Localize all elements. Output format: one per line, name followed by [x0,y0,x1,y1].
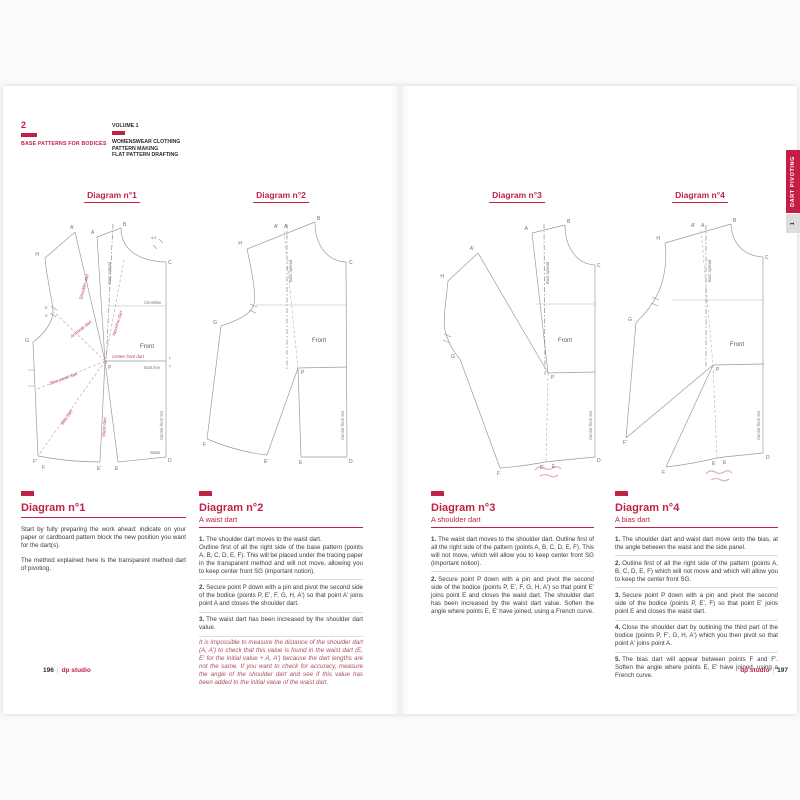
red-rule [199,527,363,528]
neckline-dart-label: Neckline dart [111,310,124,337]
section-title: Diagram n°4 [615,502,778,514]
point-B: B [123,222,127,228]
point-D: D [766,455,770,461]
point-G: G [25,338,29,344]
point-D: D [597,458,601,464]
point-labels: B A A' H C G P F E' E D [203,216,353,466]
point-L: L [169,355,172,360]
series-line: FLAT PATTERN DRAFTING [112,152,180,159]
waist-label: Waist [150,450,161,455]
page-gutter [392,86,408,714]
bust-line-label: Bust line [144,365,161,370]
point-F: F [203,442,206,448]
red-chip [431,491,444,496]
point-E-prime: E' [712,461,716,467]
italic-note: It is impossible to measure the distance… [199,636,363,687]
numbered-paragraph: 1.The shoulder dart moves to the waist d… [199,532,363,579]
chapter-tab-label: DART PIVOTING [790,156,796,207]
diagram-1-title: Diagram n°1 [84,190,140,203]
point-D: D [168,458,172,464]
point-B: B [733,218,737,224]
point-F: F [42,465,45,471]
left-page-footer: 196|dp studio [43,667,91,674]
page-number: 196 [43,667,54,674]
volume-label: VOLUME 1 [112,123,139,129]
section-subtitle: A bias dart [615,515,778,524]
point-P: P [301,370,305,376]
section-diagram-1: Diagram n°1 Start by fully preparing the… [21,491,186,576]
centre-front-sg-label: Centre front SG [340,411,345,440]
diagram-annotations: Bust spread Front Centre front SG [545,261,593,440]
book-spread: 2 BASE PATTERNS FOR BODICES VOLUME 1 WOM… [0,0,800,800]
construction-lines [28,224,163,456]
point-H: H [35,252,39,258]
series-title: WOMENSWEAR CLOTHING PATTERN MAKING FLAT … [112,139,180,159]
waist-dart-label: Waist dart [101,416,107,437]
red-chip [21,491,34,496]
point-P: P [108,365,112,371]
diagram-4-drawing: B A' A H C G P F' F E' E D Bust spread F… [622,212,798,490]
point-A: A [525,226,529,232]
section-body: 1.The shoulder dart and waist dart move … [615,532,778,684]
point-C: C [765,255,769,261]
numbered-paragraph: 3.The waist dart has been increased by t… [199,612,363,636]
side-panel-dart-label: Side panel dart [49,371,79,386]
point-A-prime: A' [470,246,474,252]
point-F-prime: F' [33,459,37,465]
point-A: A [701,223,705,229]
point-P: P [551,375,555,381]
point-H: H [440,274,444,280]
point-F-prime: F' [623,440,627,446]
red-rule [615,527,778,528]
red-chip [199,491,212,496]
point-A: A [284,224,288,230]
point-E-prime: E' [264,459,268,465]
section-diagram-4: Diagram n°4 A bias dart 1.The shoulder d… [615,491,778,684]
paragraph: The method explained here is the transpa… [21,553,186,576]
point-A: A [91,230,95,236]
point-F: F [662,470,665,476]
point-labels: B A' A H C G P F' F E' E D [623,218,770,476]
point-B: B [567,219,571,225]
numbered-paragraph: 3.Secure point P down with a pin and piv… [615,587,778,619]
point-A-prime: A' [274,224,278,230]
point-C: C [597,263,601,269]
point-K-prime: K' [45,305,49,310]
diagram-2-drawing: B A A' H C G P F E' E D Bust spread Fron… [200,212,385,488]
point-H: H [656,236,660,242]
measure-label: 4.5 [151,235,156,240]
footer-divider: | [54,667,62,674]
point-D: D [349,459,353,465]
section-body: Start by fully preparing the work ahead:… [21,522,186,576]
chapter-number: 2 [21,120,26,130]
point-E: E [115,466,119,472]
diagram-3-title: Diagram n°3 [489,190,545,203]
chapter-tab: DART PIVOTING [786,150,800,213]
diagram-1-drawing: B A A' H C G K' K P L L' F' F E' E D 4.5… [20,212,195,488]
point-E: E [299,460,303,466]
point-K: K [45,313,48,318]
point-E-prime: E' [540,465,544,471]
numbered-paragraph: 2.Secure point P down with a pin and piv… [431,571,594,619]
numbered-paragraph: 1.The shoulder dart and waist dart move … [615,532,778,555]
red-bar [21,133,37,137]
diagram-2-title: Diagram n°2 [253,190,309,203]
section-title: Diagram n°2 [199,502,363,514]
centre-front-sg-label: Centre front SG [756,411,761,440]
brand-name: dp studio [740,667,769,674]
construction-lines [651,225,732,481]
section-title: Diagram n°1 [21,502,186,514]
front-label: Front [730,342,744,348]
bust-spread-label: Bust spread [545,261,550,284]
front-label: Front [312,338,326,344]
section-diagram-2: Diagram n°2 A waist dart 1.The shoulder … [199,491,363,687]
point-A-prime: A' [691,223,695,229]
shoulder-dart-label: Shoulder dart [78,273,90,301]
bust-spread-label: Bust spread [288,259,293,282]
diagram-4-title: Diagram n°4 [672,190,728,203]
section-subtitle: A shoulder dart [431,515,594,524]
armhole-dart-label: Armhole dart [69,319,93,340]
paragraph: Start by fully preparing the work ahead:… [21,522,186,553]
chapter-title: BASE PATTERNS FOR BODICES [21,141,107,147]
point-E: E [723,460,727,466]
section-title: Diagram n°3 [431,502,594,514]
numbered-paragraph: 1.The waist dart moves to the shoulder d… [431,532,594,571]
numbered-paragraph: 2.Outline first of all the right side of… [615,555,778,587]
point-A-prime: A' [70,225,74,231]
point-F: F [497,471,500,477]
point-H: H [238,241,242,247]
section-subtitle: A waist dart [199,515,363,524]
centre-front-sg-label: Centre front SG [159,411,164,440]
point-C: C [349,260,353,266]
point-E-prime: E' [97,466,101,472]
right-page-footer: dp studio|197 [600,667,788,674]
bias-dart-label: Bias dart [60,408,74,426]
centre-front-sg-label: Centre front SG [588,411,593,440]
chestline-label: Chestline [144,300,162,305]
front-label: Front [140,344,154,350]
section-body: 1.The waist dart moves to the shoulder d… [431,532,594,620]
point-B: B [317,216,321,222]
red-rule [21,517,186,518]
footer-divider: | [769,667,777,674]
series-line: PATTERN MAKING [112,146,180,153]
point-C: C [168,260,172,266]
bust-spread-label: Bust spread [707,259,712,282]
section-body: 1.The shoulder dart moves to the waist d… [199,532,363,636]
series-line: WOMENSWEAR CLOTHING [112,139,180,146]
numbered-paragraph: 2.Secure point P down with a pin and piv… [199,579,363,611]
brand-name: dp studio [62,667,91,674]
bust-spread-label: Bust spread [107,261,112,284]
numbered-paragraph: 4.Close the shoulder dart by outlining t… [615,620,778,652]
front-label: Front [558,338,572,344]
pattern-outline [444,225,595,468]
center-front-dart-label: Center front dart [112,354,145,359]
diagram-3-drawing: A' H B A C G P F E' E D Bust spread Fron… [440,212,620,490]
red-bar [112,131,125,135]
point-L-prime: L' [169,363,172,368]
section-diagram-3: Diagram n°3 A shoulder dart 1.The waist … [431,491,594,620]
point-G: G [213,320,217,326]
diagram-annotations: Bust spread Front Centre front SG [288,259,345,440]
red-chip [615,491,628,496]
point-G: G [451,354,455,360]
construction-lines [443,224,561,477]
point-P: P [716,367,720,373]
construction-lines [249,224,298,370]
point-G: G [628,317,632,323]
page-number: 197 [777,667,788,674]
red-rule [431,527,594,528]
